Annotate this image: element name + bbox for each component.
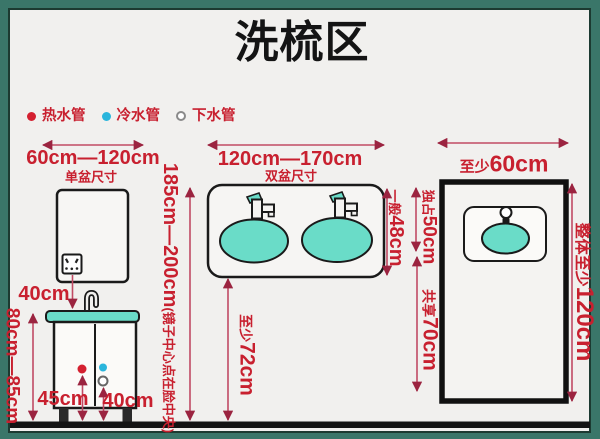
legend: 热水管 冷水管 下水管 (27, 109, 236, 124)
gooseneck-faucet-icon (87, 293, 96, 312)
overall-length-label: 整体至少120cm (572, 223, 596, 362)
floor-line (10, 422, 590, 429)
single-basin-caption: 单盆尺寸 (65, 171, 117, 184)
exclusive-width-prefix: 独占 (421, 190, 436, 216)
mirror-height-value: 185cm—200cm (159, 163, 181, 308)
single-basin-width-label: 60cm—120cm (26, 148, 159, 168)
double-basin-width-label: 120cm—170cm (218, 149, 363, 169)
basin-top-view (482, 224, 529, 254)
cabinet-leg-left (59, 408, 69, 423)
cold-pipe-legend-icon (102, 112, 111, 121)
exclusive-width-label: 独占50cm (420, 190, 439, 265)
hot-pipe-height-label: 45cm (37, 389, 88, 409)
page-title: 洗梳区 (235, 6, 370, 70)
drain-pipe-legend-icon (176, 111, 186, 121)
cold-pipe-label: 冷水管 (117, 109, 161, 124)
basin-left (220, 220, 288, 263)
overall-length-value: 120cm (571, 287, 598, 362)
drain-pipe-label: 下水管 (192, 109, 236, 124)
mirror-height-note: (镜子中心点在脸中央) (161, 307, 176, 433)
faucet-top-view-icon (501, 207, 512, 218)
hot-pipe-dot (78, 365, 87, 374)
front-clearance-value: 72cm (236, 342, 259, 396)
hot-pipe-legend-icon (27, 112, 36, 121)
min-width-label: 至少60cm (460, 153, 549, 176)
counter-depth-label: 一般48cm (386, 189, 406, 266)
power-outlet-icon (63, 255, 82, 274)
shared-width-value: 70cm (419, 317, 442, 371)
overall-length-prefix: 整体至少 (573, 223, 590, 287)
min-width-value: 60cm (490, 151, 549, 177)
exclusive-width-value: 50cm (419, 216, 440, 265)
counter-depth-prefix: 一般 (387, 189, 402, 215)
counter-height-label: 80cm—85cm (3, 308, 22, 424)
drain-height-label: 40cm (102, 391, 153, 411)
basin-counter-front (46, 311, 139, 322)
front-clearance-prefix: 至少 (238, 314, 254, 342)
shared-width-prefix: 共享 (421, 289, 437, 317)
bathroom-dimensions-infographic: 洗梳区 热水管 冷水管 下水管 60cm—120cm 单盆尺寸 120cm—17… (0, 0, 600, 439)
mirror-height-label: 185cm—200cm(镜子中心点在脸中央) (160, 163, 180, 433)
counter-depth-value: 48cm (385, 215, 407, 266)
min-width-prefix: 至少 (460, 159, 490, 176)
double-basin-caption: 双盆尺寸 (265, 170, 317, 183)
drain-pipe-dot (99, 377, 108, 386)
cold-pipe-dot (99, 364, 107, 372)
mirror-gap-label: 40cm (18, 284, 69, 304)
basin-right (302, 218, 372, 262)
hot-pipe-label: 热水管 (42, 109, 86, 124)
shared-width-label: 共享70cm (420, 289, 441, 371)
front-clearance-label: 至少72cm (237, 314, 258, 396)
